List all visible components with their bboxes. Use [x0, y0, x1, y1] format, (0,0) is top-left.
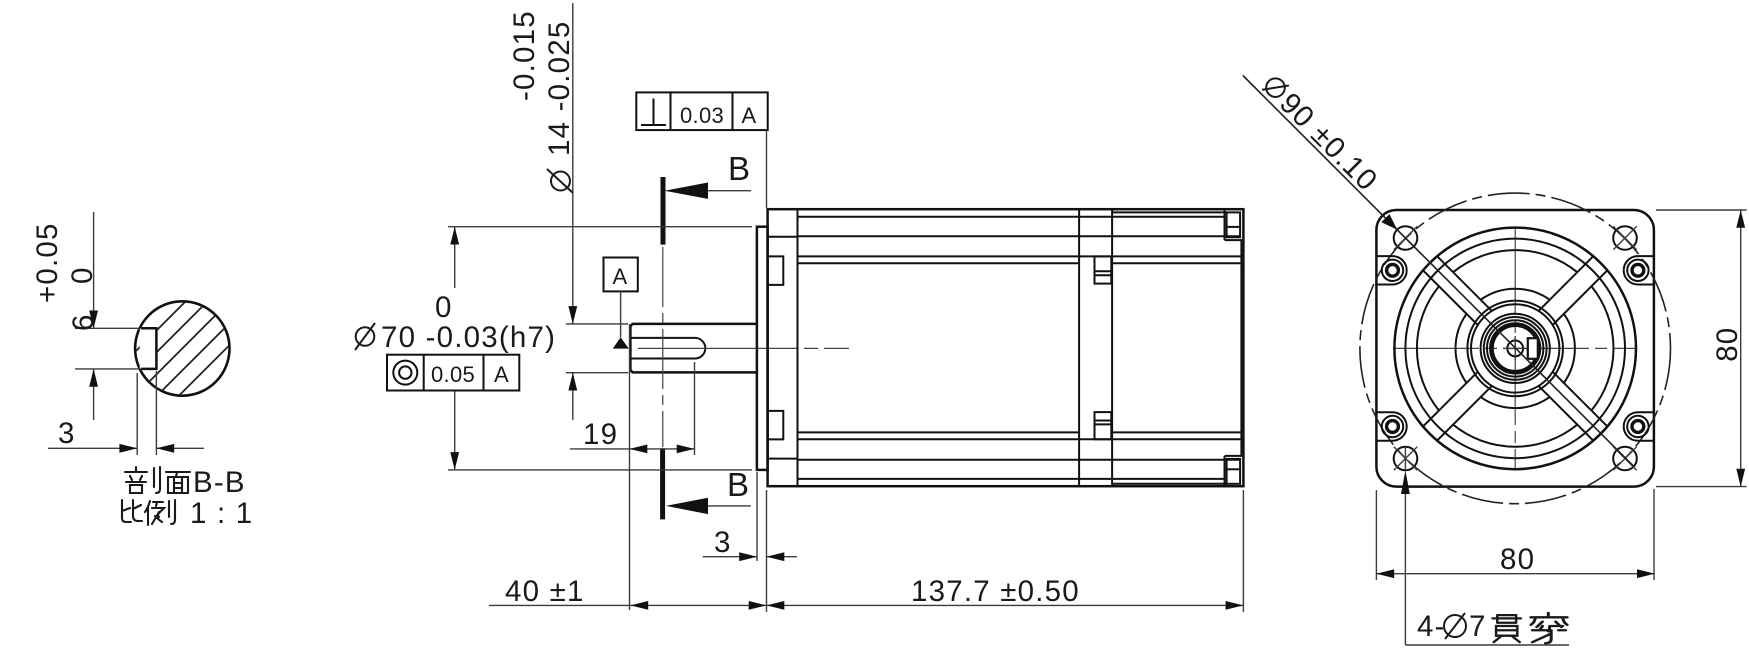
svg-text:3: 3 [58, 417, 76, 450]
svg-text:3: 3 [714, 526, 732, 559]
svg-text:0: 0 [435, 291, 453, 324]
svg-text:A: A [742, 103, 757, 128]
svg-text:80: 80 [1711, 327, 1744, 362]
svg-text:A: A [494, 362, 509, 387]
svg-text:+0.05: +0.05 [31, 222, 64, 303]
svg-text:4-: 4- [1417, 610, 1446, 643]
svg-text:7: 7 [1469, 610, 1487, 643]
svg-text:B-B: B-B [193, 466, 246, 499]
svg-text:0: 0 [66, 266, 99, 284]
svg-text:1 : 1: 1 : 1 [190, 497, 253, 530]
svg-text:0.05: 0.05 [431, 362, 475, 387]
svg-text:0.03: 0.03 [680, 103, 724, 128]
svg-text:14 -0.025: 14 -0.025 [543, 21, 576, 156]
svg-text:6: 6 [67, 313, 100, 331]
svg-text:80: 80 [1500, 543, 1535, 576]
svg-text:137.7 ±0.50: 137.7 ±0.50 [911, 575, 1080, 608]
svg-text:19: 19 [583, 418, 618, 451]
svg-text:B: B [727, 466, 749, 503]
svg-text:B: B [728, 150, 750, 187]
svg-text:A: A [613, 264, 628, 289]
svg-text:-0.015: -0.015 [508, 10, 541, 101]
svg-text:70 -0.03(h7): 70 -0.03(h7) [381, 321, 556, 354]
svg-text:40 ±1: 40 ±1 [505, 575, 585, 608]
